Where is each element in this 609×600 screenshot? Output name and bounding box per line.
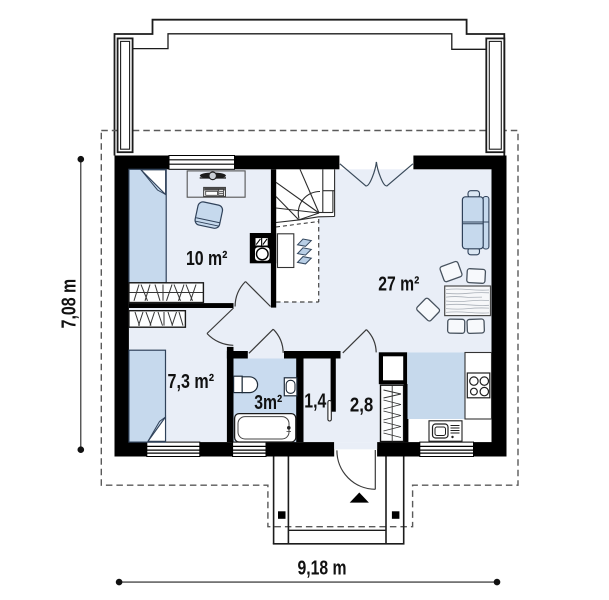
svg-text:7,3 m²: 7,3 m² <box>168 370 215 393</box>
svg-text:2,8: 2,8 <box>350 393 373 416</box>
svg-text:7,08 m: 7,08 m <box>58 279 81 329</box>
svg-text:3m²: 3m² <box>254 391 282 414</box>
svg-text:10 m²: 10 m² <box>186 247 228 270</box>
svg-text:27 m²: 27 m² <box>378 272 419 295</box>
svg-text:1,4: 1,4 <box>304 389 326 412</box>
svg-text:9,18 m: 9,18 m <box>298 557 347 580</box>
